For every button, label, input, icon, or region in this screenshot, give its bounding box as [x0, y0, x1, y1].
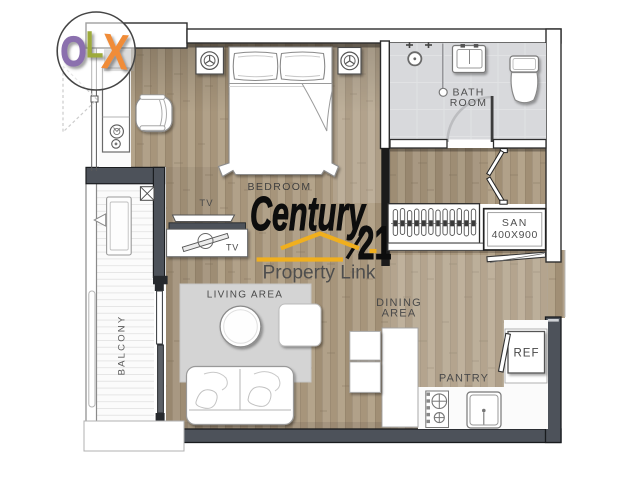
svg-text:AREA: AREA — [382, 308, 417, 320]
svg-text:LIVING AREA: LIVING AREA — [207, 290, 284, 301]
svg-text:REF: REF — [514, 348, 540, 360]
svg-text:X: X — [100, 23, 131, 81]
svg-text:BALCONY: BALCONY — [117, 315, 128, 376]
svg-text:O: O — [61, 27, 87, 74]
svg-text:ROOM: ROOM — [450, 97, 487, 109]
svg-text:SAN: SAN — [502, 217, 528, 229]
svg-text:400X900: 400X900 — [492, 229, 538, 241]
svg-text:PANTRY: PANTRY — [439, 373, 489, 385]
svg-text:Century: Century — [250, 188, 366, 241]
svg-text:TV: TV — [226, 243, 239, 253]
svg-text:Property Link: Property Link — [263, 262, 376, 284]
svg-text:TV: TV — [199, 198, 213, 209]
